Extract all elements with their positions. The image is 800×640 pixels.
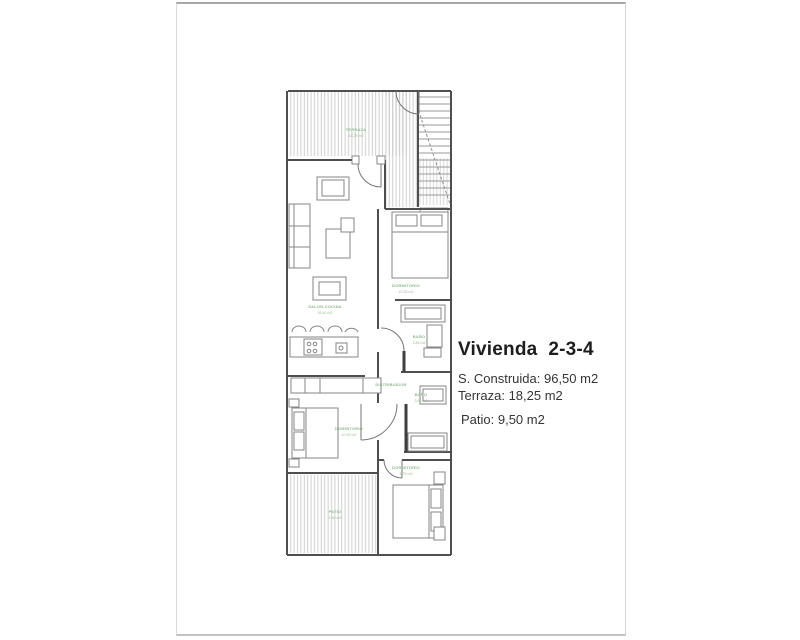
nightstand — [434, 472, 445, 484]
unit-info: Vivienda 2-3-4 S. Construida: 96,50 m2 T… — [458, 339, 628, 428]
bedroom2-door — [361, 404, 397, 440]
coffee-table — [326, 218, 354, 258]
room-label-terraza: TERRAZA — [346, 127, 367, 132]
room-label-dormitorio2: DORMITORIO — [335, 426, 363, 431]
room-area-patio: 9,50 m2 — [329, 516, 342, 520]
room-area-dormitorio2: 10,90 m2 — [342, 433, 357, 437]
bed-bedroom2 — [289, 399, 338, 467]
bed-bedroom1 — [392, 212, 448, 278]
room-label-dormitorio3: DORMITORIO — [392, 465, 420, 470]
room-label-dormitorio1: DORMITORIO — [392, 283, 420, 288]
living-terrace-door — [358, 164, 381, 187]
room-label-distribuidor: DISTRIBUIDOR — [375, 382, 406, 387]
bathroom1-door-arc — [381, 328, 404, 351]
closet-strip — [291, 378, 381, 393]
armchair — [317, 177, 349, 200]
patio-area-line: Patio: 9,50 m2 — [458, 411, 628, 428]
room-label-bano1: BAÑO — [413, 334, 426, 339]
room-area-terraza: 18,25 m2 — [349, 134, 364, 138]
room-label-salon: SALON-COCINA — [308, 304, 342, 309]
room-label-patio: PATIO — [329, 509, 342, 514]
floor-plan: TERRAZA 18,25 m2 SALON-COCINA 26,40 m2 D… — [0, 0, 800, 640]
room-area-dormitorio3: 8,75 m2 — [400, 472, 413, 476]
bed-bedroom3 — [393, 472, 445, 540]
nightstand — [289, 459, 299, 467]
kitchen-sink — [336, 343, 347, 353]
bathroom1-fixtures — [401, 305, 445, 357]
page: TERRAZA 18,25 m2 SALON-COCINA 26,40 m2 D… — [0, 0, 800, 640]
sofa — [289, 204, 310, 268]
bar-stools — [292, 326, 358, 332]
room-area-salon: 26,40 m2 — [318, 311, 333, 315]
terrace-area-line: Terraza: 18,25 m2 — [458, 387, 628, 404]
room-label-bano2: BAÑO — [415, 392, 428, 397]
room-area-bano1: 3,85 m2 — [413, 341, 426, 345]
kitchen-counter — [290, 337, 358, 357]
dining-table — [313, 277, 346, 300]
nightstand — [434, 527, 445, 540]
staircase — [419, 97, 451, 215]
nightstand — [289, 399, 299, 407]
patio-hatch — [289, 475, 377, 553]
room-area-dormitorio1: 10,35 m2 — [399, 290, 414, 294]
window-jambs — [352, 156, 385, 164]
wall-thick-leaves — [404, 351, 406, 452]
unit-title: Vivienda 2-3-4 — [458, 339, 628, 361]
room-area-bano2: 3,60 m2 — [415, 399, 428, 403]
terrace-hatch — [290, 92, 417, 207]
built-area-line: S. Construida: 96,50 m2 — [458, 370, 628, 387]
